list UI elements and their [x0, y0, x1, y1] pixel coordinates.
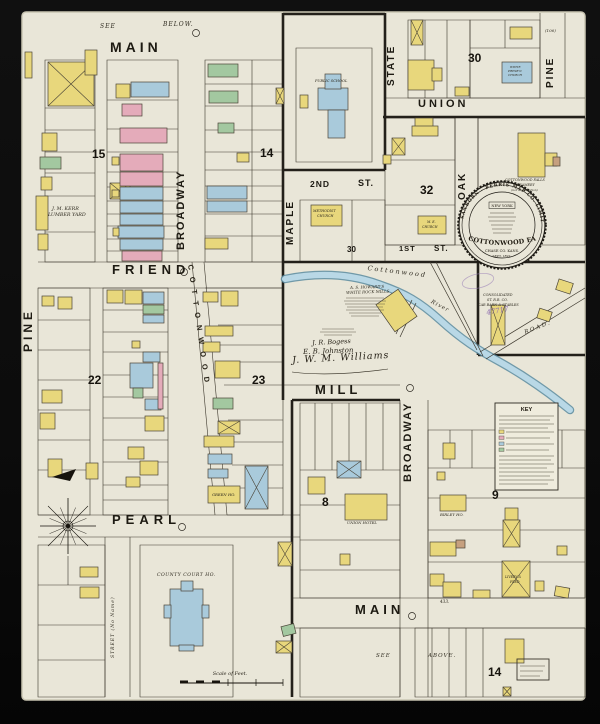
building [120, 172, 163, 186]
building [535, 581, 544, 591]
building [143, 315, 164, 323]
building [42, 390, 62, 403]
building [143, 292, 164, 304]
building [437, 472, 445, 480]
building [205, 326, 233, 336]
building [203, 292, 218, 302]
building [120, 128, 167, 143]
building [473, 590, 490, 598]
building [116, 84, 130, 98]
building [86, 463, 98, 479]
building [443, 443, 455, 459]
building [143, 305, 164, 314]
building [411, 20, 423, 45]
building [203, 342, 220, 352]
key-legend: KEY [495, 403, 558, 490]
building [181, 581, 193, 591]
building [412, 126, 438, 136]
building [554, 586, 570, 598]
building [120, 187, 163, 200]
building [40, 413, 55, 429]
building [120, 154, 163, 171]
building [126, 477, 140, 487]
building [25, 52, 32, 78]
building [208, 64, 238, 77]
building [207, 201, 247, 212]
building [122, 104, 142, 116]
building [430, 574, 444, 586]
building [491, 305, 505, 345]
building [112, 157, 119, 165]
building [318, 88, 348, 110]
building [145, 416, 164, 431]
building [112, 190, 119, 197]
building [345, 494, 387, 520]
building [440, 495, 466, 511]
scale-label: Scale of Feet. [213, 671, 248, 677]
building [131, 82, 169, 97]
building [120, 201, 163, 213]
building [518, 133, 545, 177]
building [40, 157, 61, 169]
building [278, 542, 292, 566]
building [502, 62, 532, 83]
building [85, 50, 97, 75]
building [276, 641, 292, 653]
building [125, 290, 142, 304]
building [383, 155, 391, 164]
building [553, 157, 560, 166]
building [300, 95, 308, 108]
seal-date: SEPT. 1892. [493, 254, 512, 258]
building [42, 296, 54, 306]
building [213, 398, 233, 409]
building [456, 540, 465, 548]
building [132, 341, 140, 348]
building [130, 363, 153, 388]
building [418, 216, 446, 234]
building [120, 214, 163, 225]
building [207, 186, 247, 199]
building [208, 454, 232, 464]
building [208, 469, 228, 478]
building [36, 196, 48, 230]
building [276, 88, 284, 104]
building [503, 687, 511, 696]
building [328, 110, 345, 138]
building [237, 153, 249, 162]
building [218, 123, 234, 133]
building [325, 74, 341, 89]
building [107, 290, 123, 303]
photograph-background: Scale of Feet. KEY [0, 0, 600, 724]
building [340, 554, 350, 565]
building [48, 459, 62, 477]
building [164, 605, 171, 618]
building [202, 605, 209, 618]
building [443, 582, 461, 597]
building [218, 421, 240, 434]
building [38, 234, 48, 250]
building [432, 68, 442, 81]
building [205, 238, 228, 249]
building [170, 589, 203, 646]
building [502, 561, 530, 597]
building [308, 477, 325, 494]
building [215, 361, 240, 378]
building [510, 27, 532, 39]
building [204, 436, 234, 447]
seal-new-york: NEW YORK [491, 204, 513, 208]
building [42, 133, 57, 151]
building [503, 520, 520, 547]
building [311, 205, 342, 226]
building [245, 466, 268, 509]
building [133, 388, 143, 398]
building [118, 226, 164, 238]
building [128, 447, 144, 459]
building [122, 251, 162, 261]
building [430, 542, 456, 556]
building [158, 363, 163, 409]
building [140, 461, 158, 475]
building [80, 587, 99, 598]
building [337, 461, 361, 478]
building [120, 239, 163, 250]
building [143, 352, 160, 362]
key-title: KEY [521, 407, 533, 413]
building [113, 228, 119, 236]
building [58, 297, 72, 309]
building [408, 60, 434, 90]
building [221, 291, 238, 306]
building [455, 87, 469, 96]
building [80, 567, 98, 577]
building [557, 546, 567, 555]
building [209, 91, 238, 103]
sanborn-map-sheet: Scale of Feet. KEY [0, 0, 600, 724]
seal-county: CHASE CO. KANS. [485, 249, 519, 253]
building [392, 138, 405, 155]
building [505, 508, 518, 520]
building [208, 486, 240, 503]
building [179, 645, 194, 651]
building [41, 177, 52, 190]
